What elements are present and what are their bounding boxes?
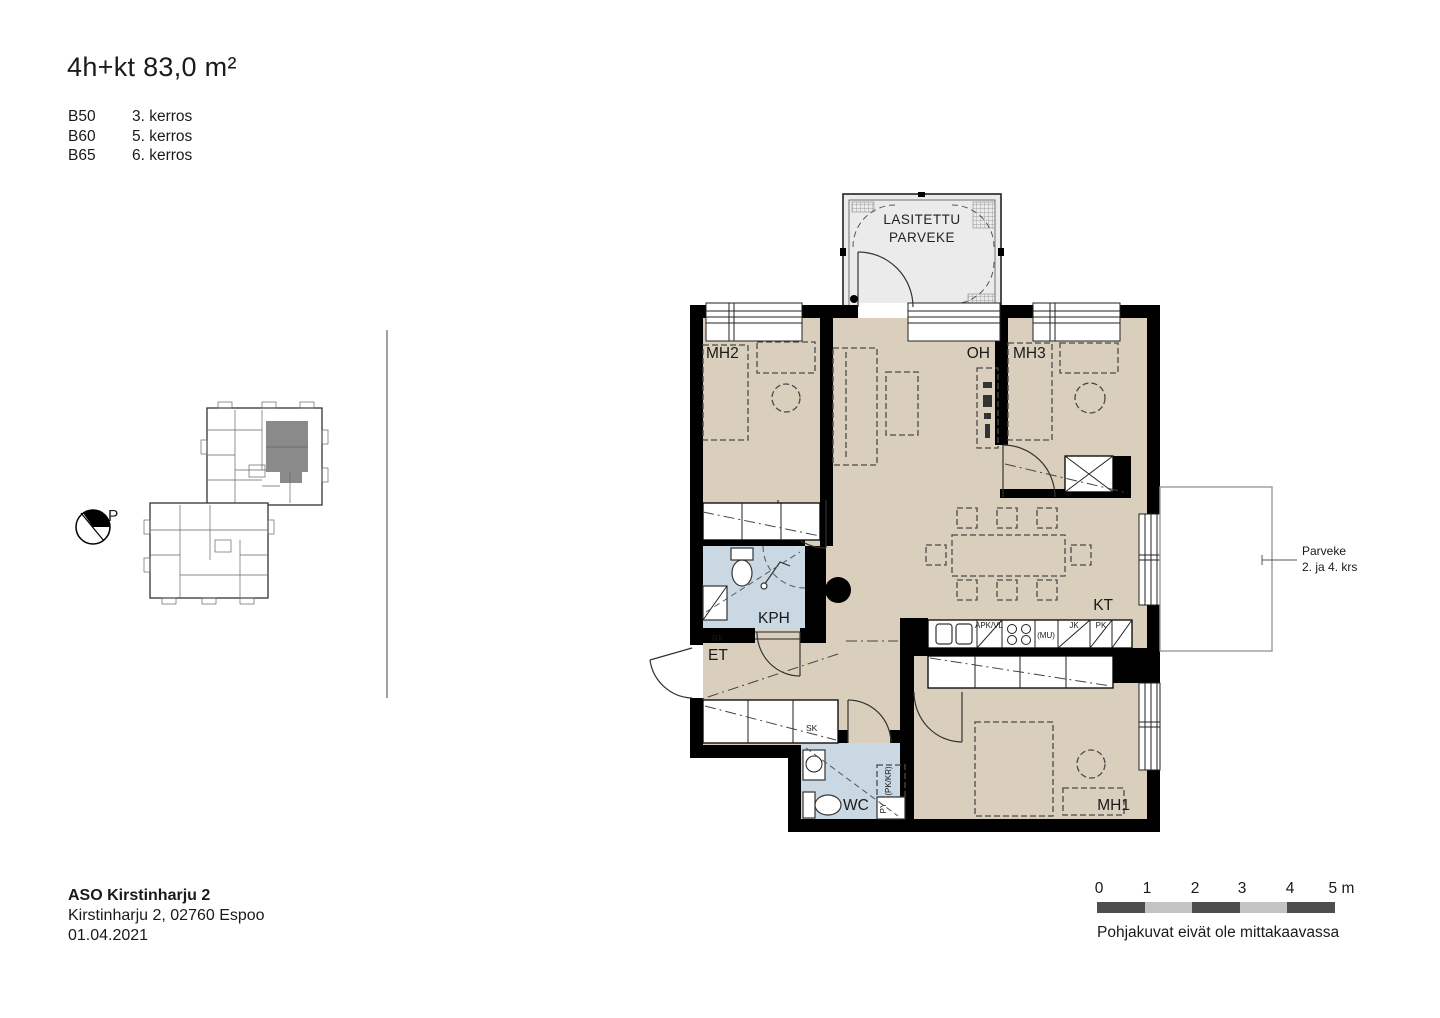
glazed-balcony: LASITETTU PARVEKE: [840, 192, 1004, 310]
room-label-wc: WC: [843, 797, 869, 814]
room-label-oh: OH: [967, 345, 990, 362]
room-label-kph: KPH: [758, 610, 790, 627]
mh3-closet: [1065, 456, 1113, 492]
compass-label: P: [108, 508, 118, 525]
scale-tick: 0: [1095, 880, 1104, 898]
scale-segment: [1240, 902, 1288, 913]
scale-tick: 3: [1238, 880, 1247, 898]
scale-segment: [1145, 902, 1193, 913]
microwave-label: (MU): [1037, 631, 1055, 640]
sk-label: SK: [806, 723, 818, 733]
fridge-label: JK: [1069, 621, 1079, 630]
room-label-mh2: MH2: [706, 345, 739, 362]
room-label-kt: KT: [1093, 597, 1113, 614]
footer-block: ASO Kirstinharju 2 Kirstinharju 2, 02760…: [68, 886, 265, 946]
floorplan-page: 4h+kt 83,0 m² B503. kerros B605. kerros …: [0, 0, 1440, 1018]
column: [825, 577, 851, 603]
scale-segment: [1287, 902, 1335, 913]
balcony-label-line2: PARVEKE: [889, 230, 955, 245]
et-closet: SK: [703, 700, 838, 743]
mh2-closet: [703, 503, 820, 540]
room-label-et: ET: [708, 647, 728, 664]
annotation-line2: 2. ja 4. krs: [1302, 560, 1357, 574]
plan-date: 01.04.2021: [68, 926, 265, 946]
north-compass-icon: P: [76, 508, 118, 544]
freezer-label: PK: [1096, 621, 1107, 630]
project-address: Kirstinharju 2, 02760 Espoo: [68, 906, 265, 926]
washer-dryer-label: (PK/KR): [884, 766, 893, 796]
room-label-mh3: MH3: [1013, 345, 1046, 362]
dishwasher-label: APK/VL: [975, 621, 1004, 630]
kitchen-counter: APK/VL (MU) JK PK: [928, 620, 1132, 648]
scale-tick: 5 m: [1329, 880, 1355, 898]
balcony-label-line1: LASITETTU: [883, 212, 960, 227]
scale-bar: 0 1 2 3 4 5 m Pohjakuvat eivät ole mitta…: [1097, 880, 1357, 942]
scale-tick: 2: [1191, 880, 1200, 898]
room-label-mh1: MH1: [1097, 797, 1130, 814]
key-plan: [144, 402, 328, 604]
annotation-line1: Parveke: [1302, 544, 1346, 558]
scale-caption: Pohjakuvat eivät ole mittakaavassa: [1097, 924, 1357, 942]
entrance-door: [650, 648, 692, 698]
project-name: ASO Kirstinharju 2: [68, 886, 265, 906]
rk-label: RK: [712, 633, 724, 643]
scale-segment: [1097, 902, 1145, 913]
scale-bar-segments: [1097, 902, 1335, 913]
floorplan-drawing: P: [0, 0, 1440, 1018]
scale-tick: 4: [1286, 880, 1295, 898]
scale-ticks: 0 1 2 3 4 5 m: [1097, 880, 1357, 899]
scale-segment: [1192, 902, 1240, 913]
open-balcony-annotation: Parveke 2. ja 4. krs: [1160, 487, 1357, 651]
scale-tick: 1: [1143, 880, 1152, 898]
